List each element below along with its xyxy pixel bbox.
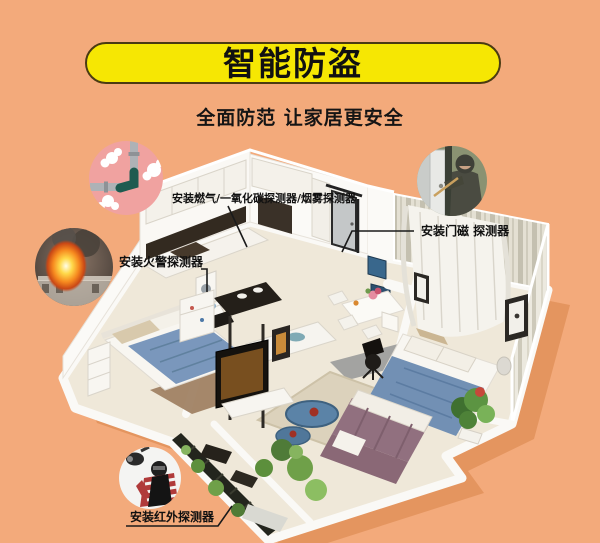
door-callout-icon [417,146,487,216]
gas-detector-label: 安装燃气/一氧化碳探测器/烟雾探测器 [172,192,356,205]
door-sensor-label: 安装门磁 探测器 [421,224,509,238]
fire-callout-icon [35,226,115,306]
fire-detector-label: 安装火警探测器 [119,255,203,269]
infrared-detector-label: 安装红外探测器 [130,510,214,524]
infrared-callout-icon [119,447,181,509]
poster: 智能防盗 全面防范 让家居更安全 [0,0,600,543]
floorplan-illustration [0,0,600,543]
